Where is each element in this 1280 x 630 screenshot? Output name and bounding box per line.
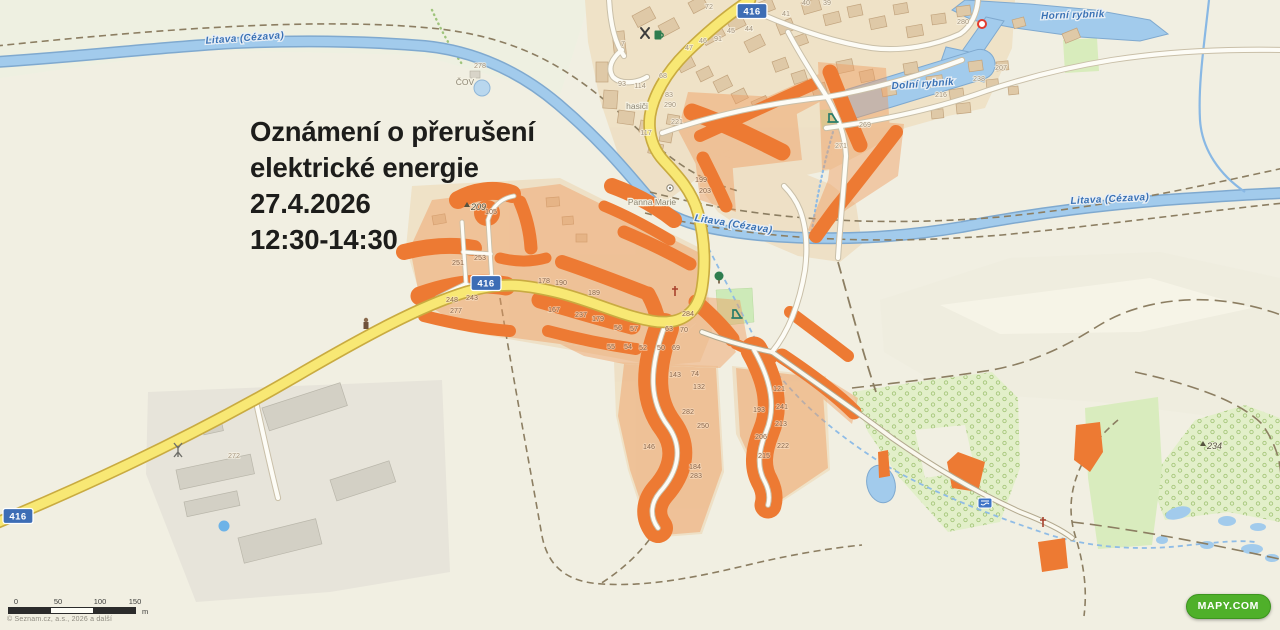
house-number: 7 [621,39,625,48]
map-label: Horní rybník [1041,9,1105,22]
house-number: 237 [575,310,587,319]
svg-text:416: 416 [9,511,26,522]
house-number: 55 [607,342,615,351]
house-number: 57 [630,324,638,333]
house-number: 271 [835,141,847,150]
house-number: 199 [695,175,707,184]
house-number: 241 [776,402,788,411]
house-number: 47 [685,43,693,52]
scale-tick: 0 [14,597,18,606]
house-number: 83 [665,90,673,99]
house-number: 39 [823,0,831,7]
scale-ticks: 0 50 100 150 [8,597,178,606]
cov-basin [474,80,490,96]
house-number: 251 [452,258,464,267]
house-number: 143 [669,370,681,379]
scale-tick: 50 [54,597,62,606]
announcement-time: 12:30-14:30 [250,222,535,258]
scale-tick: 100 [94,597,107,606]
map-screenshot: Litava (Cézava)Litava (Cézava)Litava (Cé… [0,0,1280,630]
house-number: 269 [859,120,871,129]
house-number: 213 [775,419,787,428]
scale-unit: m [142,607,148,616]
house-number: 250 [697,421,709,430]
house-number: 50 [657,343,665,352]
house-number: 206 [755,432,767,441]
house-number: 114 [634,81,645,90]
house-number: 282 [682,407,694,416]
map-attribution: © Seznam.cz, a.s., 2026 a další [7,616,112,623]
house-number: 283 [690,471,702,480]
scale-bar: 0 50 100 150 m [8,597,178,614]
house-number: 193 [753,405,765,414]
map-canvas[interactable]: Litava (Cézava)Litava (Cézava)Litava (Cé… [0,0,1280,630]
map-label: ČOV [456,77,475,87]
house-number: 70 [680,325,688,334]
road-shield: 416 [471,276,501,291]
road-shield: 416 [737,4,767,19]
announcement-date: 27.4.2026 [250,186,535,222]
house-number: 74 [691,369,699,378]
house-number: 40 [802,0,810,7]
green-field [1085,397,1162,549]
map-label: hasiči [626,101,648,111]
house-number: 284 [682,309,694,318]
house-number: 190 [555,278,567,287]
house-number: 44 [745,24,753,33]
house-number: 216 [935,90,947,99]
house-number: 290 [664,100,676,109]
house-number: 189 [588,288,600,297]
svg-text:234: 234 [1206,441,1222,451]
house-number: 179 [592,314,604,323]
ford-icon [978,498,992,508]
house-number: 167 [548,305,560,314]
house-number: 91 [714,34,722,43]
monument-icon [364,318,369,329]
house-number: 117 [640,128,651,137]
house-number: 93 [618,79,626,88]
house-number: 280 [957,17,969,26]
house-number: 63 [665,324,673,333]
house-number: 243 [466,293,478,302]
house-number: 277 [450,306,462,315]
house-number: 46 [699,36,707,45]
house-number: 207 [995,63,1007,72]
farm-pond [219,521,230,532]
house-number: 222 [777,441,789,450]
house-number: 278 [474,61,486,70]
house-number: 132 [693,382,705,391]
svg-text:416: 416 [477,278,494,289]
house-number: 121 [773,384,785,393]
house-number: 184 [689,462,701,471]
bus-stop-icon [978,20,986,28]
scale-tick: 150 [129,597,142,606]
house-number: 238 [973,74,985,83]
house-number: 203 [699,186,711,195]
announcement-line-1: Oznámení o přerušení [250,114,535,150]
house-number: 272 [228,451,240,460]
road-shield: 416 [3,509,33,524]
house-number: 54 [624,342,632,351]
house-number: 72 [705,2,713,11]
house-number: 56 [614,323,622,332]
house-number: 146 [643,442,655,451]
outage-announcement: Oznámení o přerušení elektrické energie … [250,114,535,258]
svg-text:416: 416 [743,6,760,17]
mapy-logo[interactable]: MAPY.COM [1186,594,1271,619]
chapel-icon [667,185,673,191]
house-number: 215 [758,451,770,460]
house-number: 68 [659,71,667,80]
house-number: 221 [671,117,683,126]
map-label: Panna Marie [628,197,676,207]
scale-bar-rule [8,607,136,614]
house-number: 41 [782,9,790,18]
house-number: 45 [727,26,735,35]
house-number: 248 [446,295,458,304]
house-number: 69 [672,343,680,352]
house-number: 52 [639,343,647,352]
house-number: 178 [538,276,550,285]
announcement-line-2: elektrické energie [250,150,535,186]
